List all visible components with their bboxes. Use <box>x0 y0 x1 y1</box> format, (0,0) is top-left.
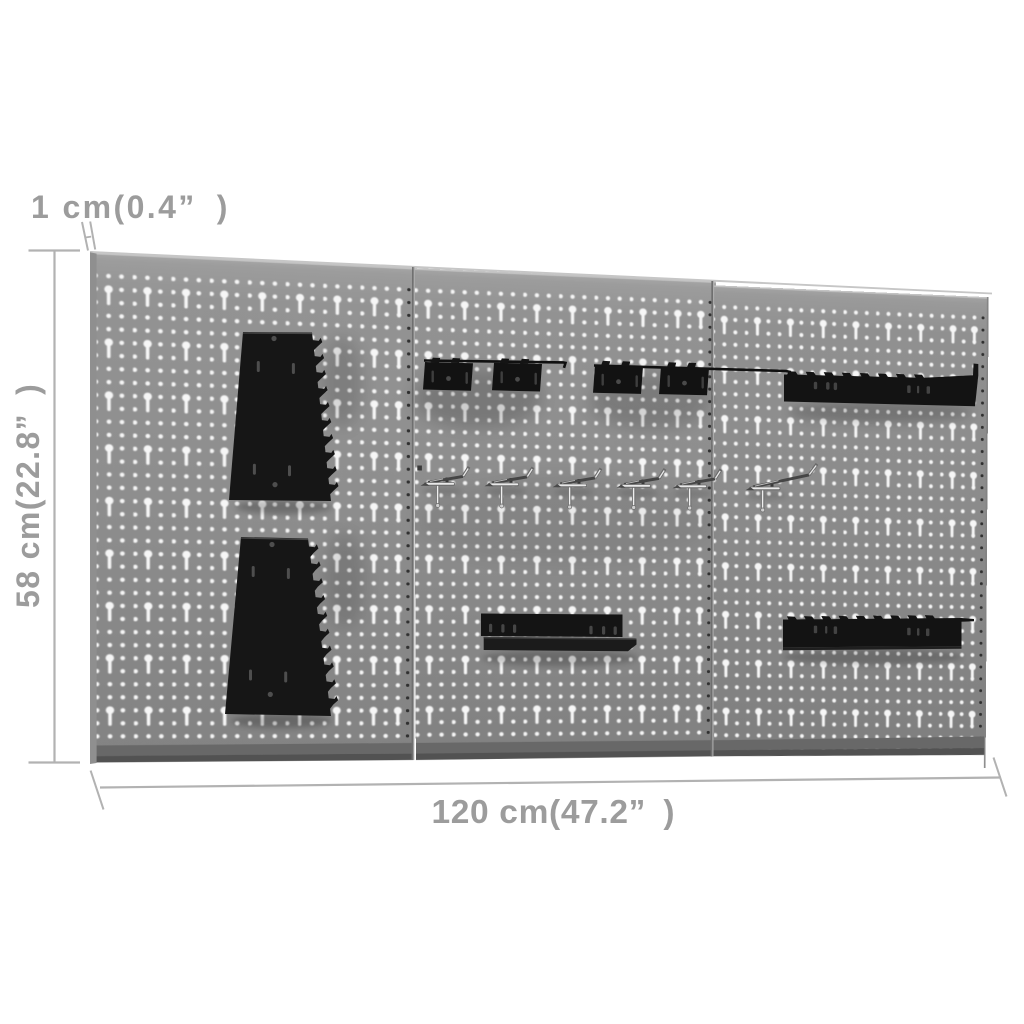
svg-text:58 cm(22.8” ): 58 cm(22.8” ) <box>10 383 46 608</box>
svg-text:120 cm(47.2” ): 120 cm(47.2” ) <box>432 794 676 831</box>
svg-text:1 cm(0.4” ): 1 cm(0.4” ) <box>31 189 230 225</box>
